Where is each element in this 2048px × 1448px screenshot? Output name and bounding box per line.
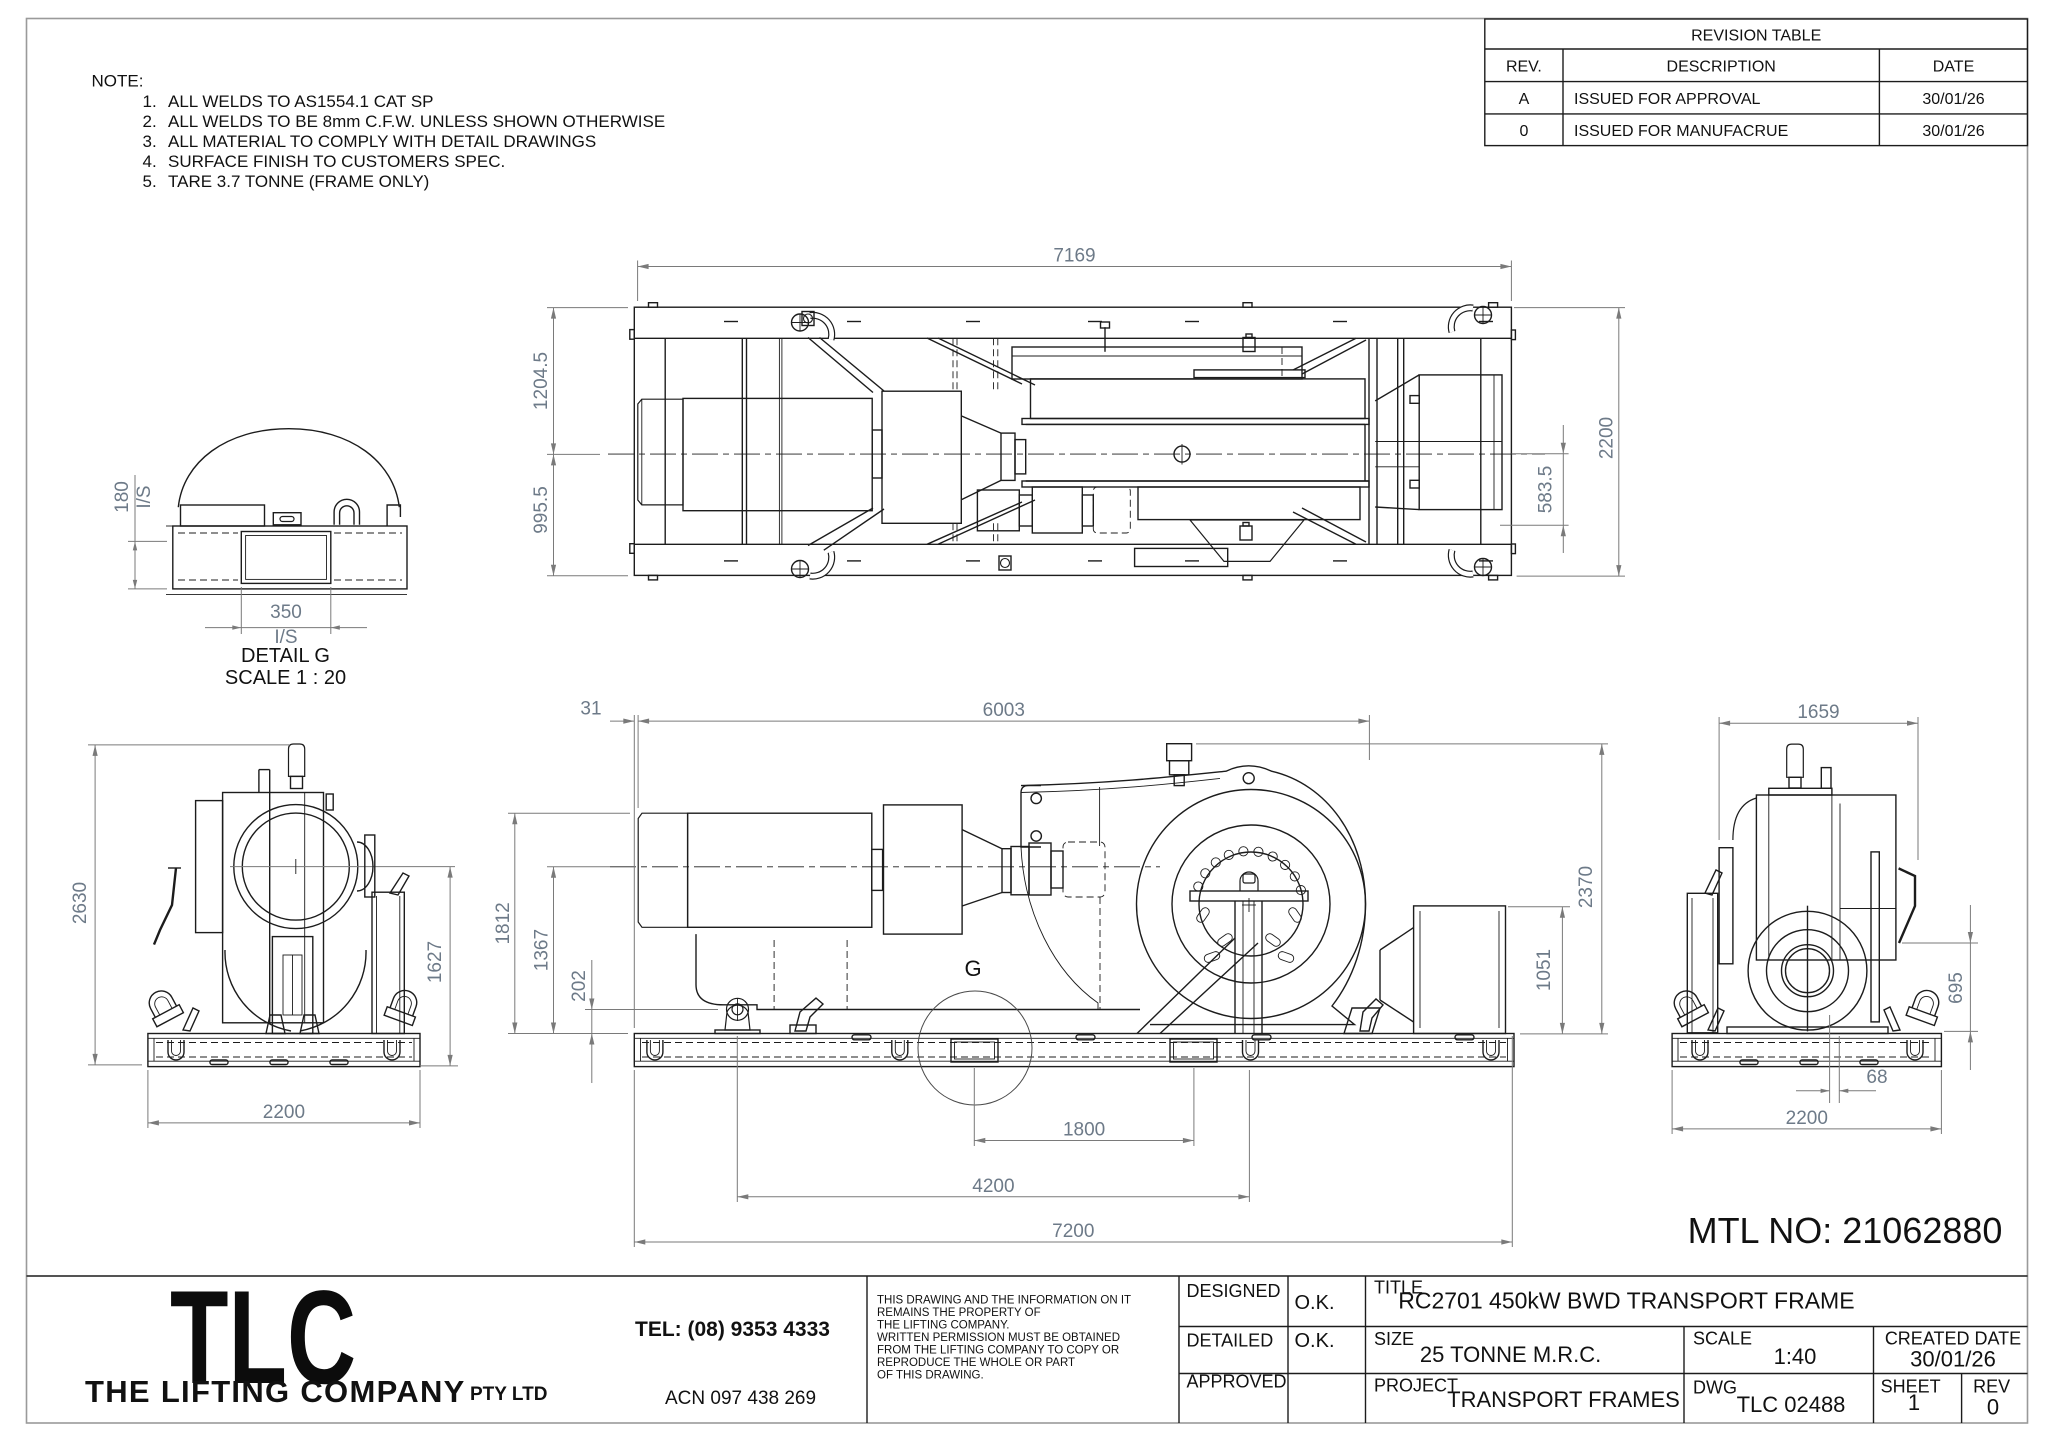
svg-text:1627: 1627 [425,941,446,983]
svg-text:0: 0 [1987,1394,1999,1419]
svg-text:O.K.: O.K. [1295,1292,1335,1314]
svg-text:30/01/26: 30/01/26 [1922,91,1984,108]
svg-text:ACN 097 438 269: ACN 097 438 269 [665,1388,816,1409]
svg-text:695: 695 [1946,972,1967,1004]
svg-text:3.: 3. [143,132,157,151]
svg-text:RC2701 450kW BWD TRANSPORT FRA: RC2701 450kW BWD TRANSPORT FRAME [1398,1288,1854,1314]
svg-text:4200: 4200 [972,1176,1014,1197]
svg-text:DESCRIPTION: DESCRIPTION [1667,59,1776,76]
svg-text:25 TONNE M.R.C.: 25 TONNE M.R.C. [1420,1342,1601,1367]
svg-text:DATE: DATE [1933,59,1974,76]
svg-text:REMAINS THE PROPERTY OF: REMAINS THE PROPERTY OF [877,1307,1041,1319]
svg-text:THE LIFTING COMPANY: THE LIFTING COMPANY [85,1374,466,1409]
svg-text:1812: 1812 [493,902,514,944]
svg-text:SCALE 1 : 20: SCALE 1 : 20 [225,667,346,689]
svg-text:ISSUED FOR MANUFACRUE: ISSUED FOR MANUFACRUE [1574,123,1788,140]
svg-text:4.: 4. [143,152,157,171]
svg-text:31: 31 [580,699,601,720]
svg-text:30/01/26: 30/01/26 [1922,123,1984,140]
svg-text:1659: 1659 [1797,702,1839,723]
svg-text:REV.: REV. [1506,59,1542,76]
svg-text:995.5: 995.5 [531,486,552,534]
svg-text:A: A [1519,91,1530,108]
svg-text:1367: 1367 [532,929,553,971]
svg-text:DETAILED: DETAILED [1187,1331,1274,1351]
svg-text:TRANSPORT FRAMES: TRANSPORT FRAMES [1447,1387,1680,1412]
svg-text:ALL WELDS TO AS1554.1 CAT SP: ALL WELDS TO AS1554.1 CAT SP [168,92,434,111]
svg-text:2.: 2. [143,112,157,131]
svg-text:I/S: I/S [134,485,155,508]
svg-text:1:40: 1:40 [1774,1344,1817,1369]
svg-text:180: 180 [112,481,133,513]
svg-text:OF THIS DRAWING.: OF THIS DRAWING. [877,1370,984,1382]
svg-text:1.: 1. [143,92,157,111]
svg-text:1051: 1051 [1534,949,1555,991]
svg-text:O.K.: O.K. [1295,1330,1335,1352]
svg-text:SCALE: SCALE [1693,1329,1752,1349]
svg-text:FROM THE LIFTING COMPANY TO CO: FROM THE LIFTING COMPANY TO COPY OR [877,1345,1119,1357]
svg-text:1800: 1800 [1063,1120,1105,1141]
svg-text:1204.5: 1204.5 [531,352,552,410]
svg-text:2200: 2200 [263,1102,305,1123]
svg-text:6003: 6003 [983,700,1025,721]
svg-text:ALL MATERIAL TO COMPLY WITH DE: ALL MATERIAL TO COMPLY WITH DETAIL DRAWI… [168,132,596,151]
svg-text:REVISION TABLE: REVISION TABLE [1691,28,1821,45]
svg-text:TLC 02488: TLC 02488 [1737,1392,1846,1417]
svg-text:583.5: 583.5 [1536,466,1557,514]
svg-text:TARE 3.7 TONNE (FRAME ONLY): TARE 3.7 TONNE (FRAME ONLY) [168,172,429,191]
svg-text:APPROVED: APPROVED [1187,1372,1287,1392]
svg-text:350: 350 [270,602,302,623]
svg-text:1: 1 [1908,1390,1920,1415]
svg-text:2630: 2630 [70,882,91,924]
svg-text:7200: 7200 [1052,1221,1094,1242]
svg-text:202: 202 [569,970,590,1002]
svg-text:ISSUED FOR APPROVAL: ISSUED FOR APPROVAL [1574,91,1761,108]
svg-text:0: 0 [1519,123,1528,140]
svg-text:DESIGNED: DESIGNED [1187,1281,1281,1301]
svg-text:TEL: (08) 9353 4333: TEL: (08) 9353 4333 [635,1318,830,1341]
svg-text:SURFACE FINISH TO CUSTOMERS SP: SURFACE FINISH TO CUSTOMERS SPEC. [168,152,505,171]
svg-text:NOTE:: NOTE: [92,72,144,91]
svg-text:G: G [964,956,981,981]
svg-text:PROJECT: PROJECT [1374,1376,1458,1396]
svg-text:5.: 5. [143,172,157,191]
svg-text:PTY LTD: PTY LTD [470,1384,547,1405]
svg-text:MTL NO: 21062880: MTL NO: 21062880 [1688,1210,2003,1251]
svg-text:2200: 2200 [1786,1108,1828,1129]
svg-text:ALL WELDS TO BE 8mm C.F.W. UNL: ALL WELDS TO BE 8mm C.F.W. UNLESS SHOWN … [168,112,665,131]
svg-text:2370: 2370 [1576,866,1597,908]
svg-text:THIS DRAWING AND THE INFORMATI: THIS DRAWING AND THE INFORMATION ON IT [877,1295,1131,1307]
svg-text:THE LIFTING COMPANY.: THE LIFTING COMPANY. [877,1320,1009,1332]
svg-text:30/01/26: 30/01/26 [1910,1346,1996,1371]
svg-text:2200: 2200 [1596,417,1617,459]
svg-text:7169: 7169 [1053,246,1095,267]
svg-text:REPRODUCE THE WHOLE OR PART: REPRODUCE THE WHOLE OR PART [877,1357,1075,1369]
svg-text:DWG: DWG [1693,1378,1737,1398]
svg-text:68: 68 [1866,1067,1887,1088]
svg-text:SIZE: SIZE [1374,1329,1414,1349]
svg-text:WRITTEN PERMISSION MUST BE OBT: WRITTEN PERMISSION MUST BE OBTAINED [877,1332,1120,1344]
svg-text:DETAIL G: DETAIL G [241,645,330,667]
